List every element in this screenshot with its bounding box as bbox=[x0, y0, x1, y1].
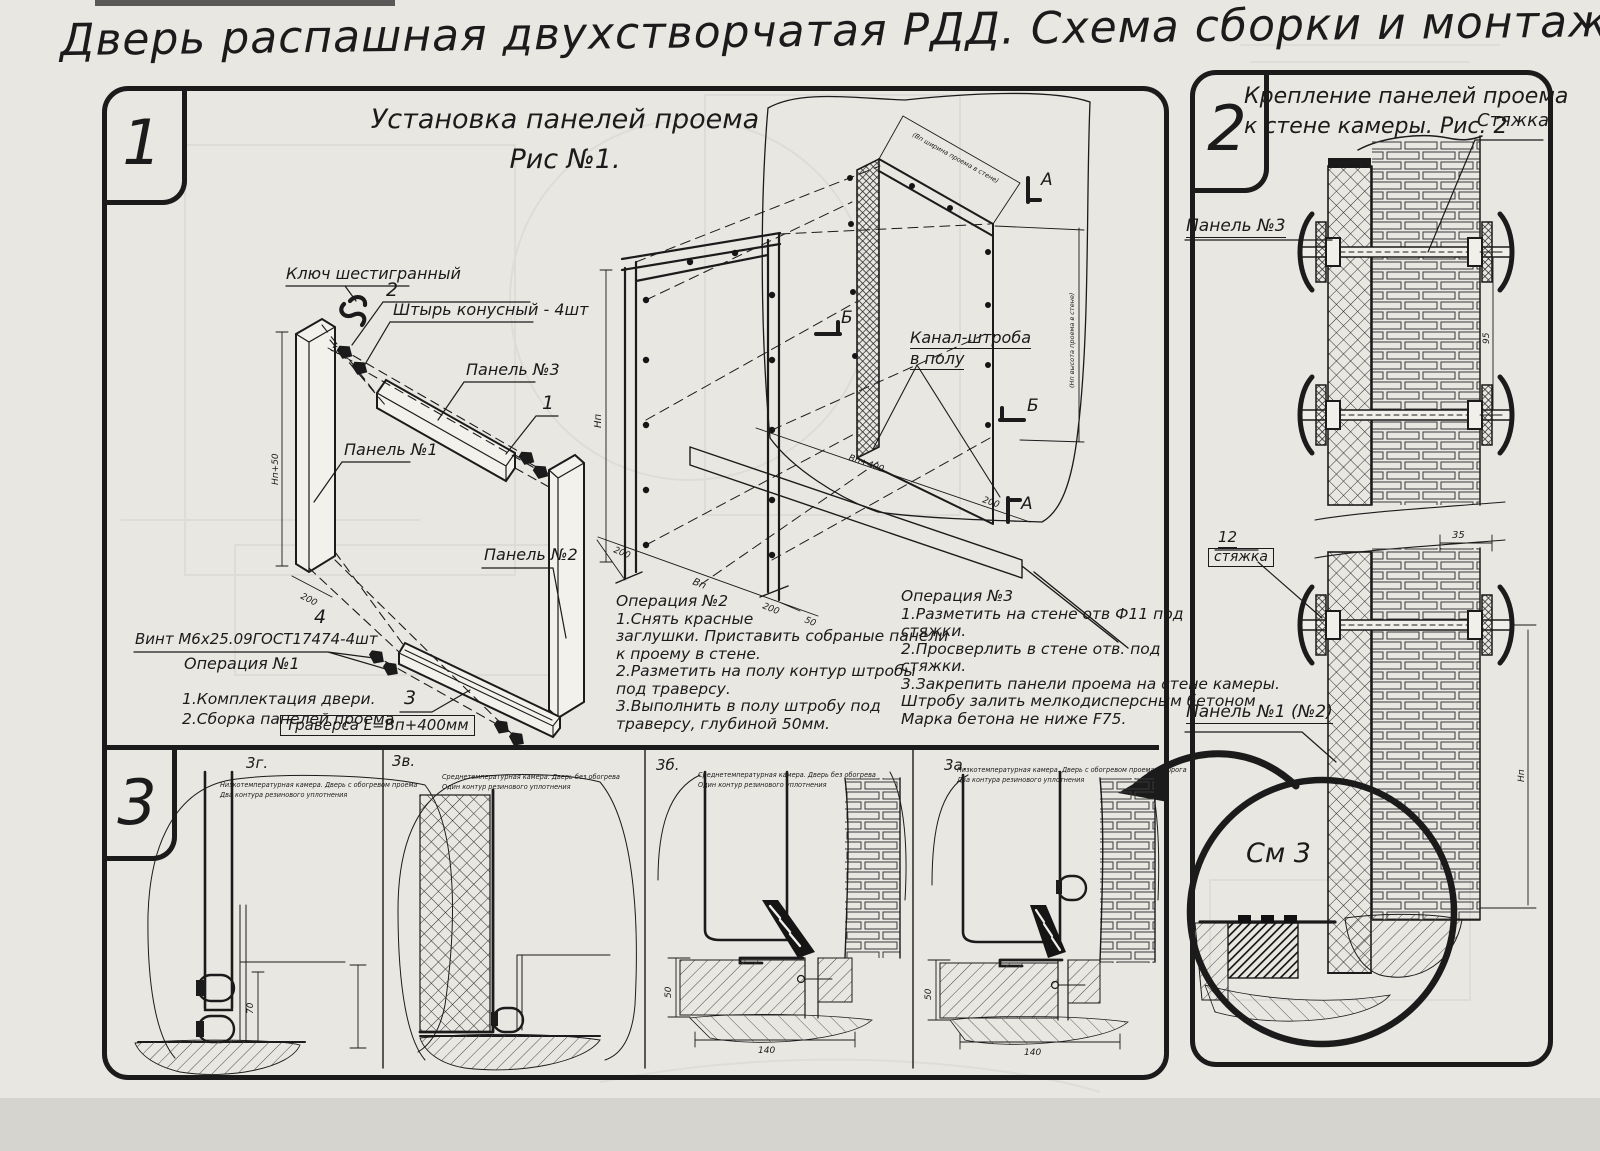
fig3v bbox=[398, 775, 636, 1070]
op2-line: Операция №2 bbox=[616, 593, 948, 611]
pos-number-3: 3 bbox=[404, 687, 416, 709]
fig3a-caption-2: Два контура резинового уплотнения bbox=[957, 776, 1084, 786]
fig2-heading-line2: к стене камеры. Рис. 2 bbox=[1244, 114, 1484, 139]
dim-np: Нп bbox=[593, 413, 604, 428]
fig3b-caption-2: Один контур резинового уплотнения bbox=[698, 781, 827, 791]
fig3v-caption-2: Один контур резинового уплотнения bbox=[442, 783, 571, 793]
label-see-detail-3: См 3 bbox=[1246, 838, 1311, 869]
op2-line: 3.Выполнить в полу штробу под bbox=[616, 698, 948, 716]
mark-b-left: Б bbox=[841, 308, 853, 328]
fig3b: 50 140 bbox=[658, 772, 906, 1056]
op1-line1: 1.Комплектация двери. bbox=[182, 690, 376, 708]
label-panel12: Панель №1 (№2) bbox=[1186, 702, 1333, 724]
dim-140-3a: 140 bbox=[1024, 1048, 1041, 1058]
fig1-assembled-frame: Нп+50 200 50 Нп 200 Вп 200 50 Вп+400 200… bbox=[271, 93, 1128, 648]
dim-140-3b: 140 bbox=[758, 1046, 775, 1056]
pos-number-4: 4 bbox=[314, 606, 326, 628]
label-screw: Винт М6х25.09ГОСТ17474-4шт bbox=[135, 630, 378, 648]
op3-line: 3.Закрепить панели проема на стене камер… bbox=[901, 676, 1280, 694]
label-panel1: Панель №1 bbox=[344, 440, 438, 459]
fig3g: 70 bbox=[135, 772, 452, 1074]
fig1-heading-line1: Установка панелей проема bbox=[355, 104, 775, 135]
fig1-heading-line2: Рис №1. bbox=[355, 144, 775, 175]
label-panel2: Панель №2 bbox=[484, 545, 578, 564]
fig3b-id: 3б. bbox=[656, 756, 680, 774]
dim-50-3a: 50 bbox=[924, 988, 934, 1000]
label-traverse: Траверса L=Вп+400мм bbox=[280, 715, 475, 736]
op2-block: Операция №2 1.Снять красные заглушки. Пр… bbox=[616, 593, 948, 733]
mark-b-right: Б bbox=[1027, 396, 1039, 416]
pos-number-1: 1 bbox=[542, 392, 554, 414]
op2-line: заглушки. Приставить собраные панели bbox=[616, 628, 948, 646]
dim-open-w: (Вп ширина проема в стене) bbox=[911, 131, 1000, 185]
dim-50-3b: 50 bbox=[664, 986, 674, 998]
op2-line: под траверсу. bbox=[616, 681, 948, 699]
label-tie-boxed: стяжка bbox=[1208, 548, 1274, 567]
op2-line: траверсу, глубиной 50мм. bbox=[616, 716, 948, 734]
label-hex-key: Ключ шестигранный bbox=[286, 264, 461, 283]
pos-number-2: 2 bbox=[386, 279, 398, 301]
op3-line: 1.Разметить на стене отв Ф11 под bbox=[901, 606, 1280, 624]
dim-open-h: (Нп высота проема в стене) bbox=[1068, 293, 1076, 388]
dim-vp: Вп bbox=[691, 577, 708, 592]
op2-line: 1.Снять красные bbox=[616, 611, 948, 629]
fig2-heading-line1: Крепление панелей проема bbox=[1244, 84, 1484, 109]
dim-70: 70 bbox=[246, 1002, 256, 1014]
dim-95: 95 bbox=[1482, 332, 1492, 344]
label-panel3: Панель №3 bbox=[466, 360, 560, 379]
mark-a-top: А bbox=[1041, 170, 1053, 190]
fig3a: 50 140 bbox=[924, 772, 1159, 1058]
label-panel3-fig2: Панель №3 bbox=[1186, 216, 1286, 238]
fig3g-caption-1: Низкотемпературная камера. Дверь с обогр… bbox=[220, 781, 417, 791]
pos-number-12: 12 bbox=[1218, 528, 1237, 548]
dim-vp400: Вп+400 bbox=[847, 453, 885, 475]
label-channel-line1: Канал-штроба bbox=[910, 328, 1031, 349]
fig3v-caption-1: Среднетемпературная камера. Дверь без об… bbox=[442, 773, 620, 783]
fig3b-caption-1: Среднетемпературная камера. Дверь без об… bbox=[698, 771, 876, 781]
mark-a-bottom: А bbox=[1021, 494, 1033, 514]
fig3g-id: 3г. bbox=[246, 754, 268, 772]
fig3g-caption-2: Два контура резинового уплотнения bbox=[220, 791, 347, 801]
op2-line: 2.Разметить на полу контур штробы bbox=[616, 663, 948, 681]
op2-line: к проему в стене. bbox=[616, 646, 948, 664]
dim-np50: Нп+50 bbox=[271, 453, 281, 485]
drawing-sheet: Дверь распашная двухстворчатая РДД. Схем… bbox=[0, 0, 1600, 1151]
op3-line: стяжки. bbox=[901, 658, 1280, 676]
fig1b-dims bbox=[597, 116, 1084, 616]
op3-line: 2.Просверлить в стене отв. под bbox=[901, 641, 1280, 659]
dim-35: 35 bbox=[1452, 530, 1465, 541]
op3-line: стяжки. bbox=[901, 623, 1280, 641]
op1-title: Операция №1 bbox=[184, 654, 300, 673]
label-conical-pin: Штырь конусный - 4шт bbox=[393, 300, 589, 319]
line-art-layer: Нп+50 200 50 Нп 200 Вп 200 50 Вп+400 200… bbox=[0, 0, 1600, 1151]
label-tie: Стяжка bbox=[1477, 110, 1549, 131]
fig3v-id: 3в. bbox=[392, 752, 415, 770]
op3-line: Операция №3 bbox=[901, 588, 1280, 606]
fig1-exploded-panels bbox=[134, 286, 584, 748]
dim-hn: Нп bbox=[1517, 769, 1527, 782]
label-channel-line2: в полу bbox=[910, 349, 964, 370]
fig3a-caption-1: Низкотемпературная камера. Дверь с обогр… bbox=[957, 766, 1187, 776]
